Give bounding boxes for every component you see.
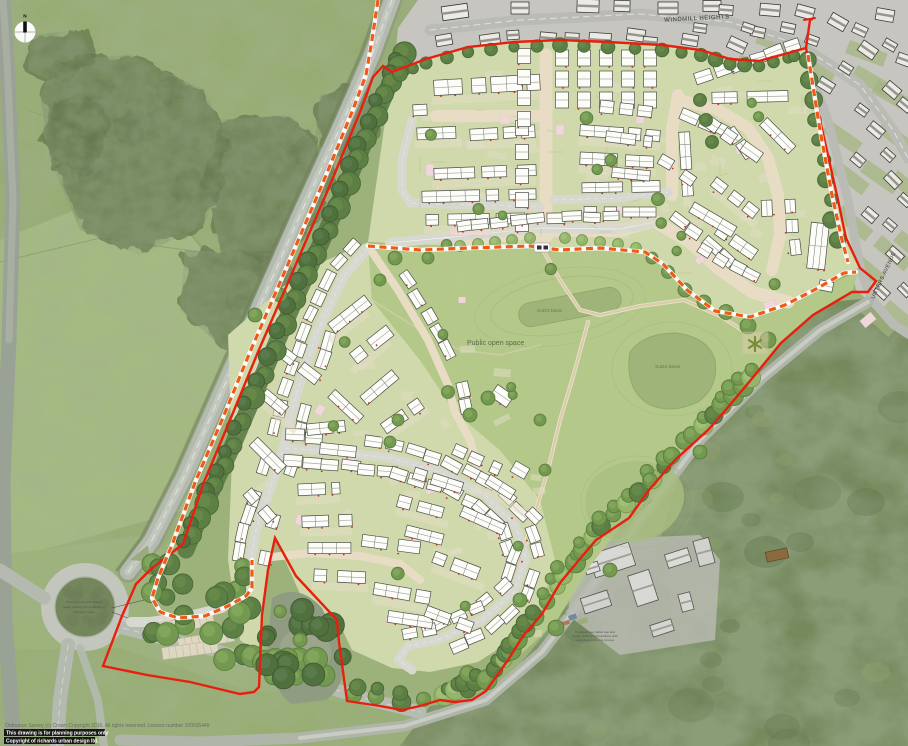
svg-text:This drawing is for planning p: This drawing is for planning purposes on… <box>6 731 108 737</box>
svg-text:Proposed new infiltr feature: Proposed new infiltr feature <box>66 600 103 604</box>
svg-text:planting to trees: planting to trees <box>73 610 95 614</box>
svg-text:Ordnance Survey (c) Crown Copy: Ordnance Survey (c) Crown Copyright 2016… <box>5 723 210 729</box>
svg-text:SuDS basin: SuDS basin <box>537 308 563 314</box>
svg-text:Copyright of richards urban de: Copyright of richards urban design ltd. <box>6 739 99 745</box>
svg-text:understorey planting to trees: understorey planting to trees <box>576 638 615 642</box>
svg-text:hedge planting with understore: hedge planting with understorey <box>63 605 106 609</box>
svg-text:Public open space: Public open space <box>467 340 524 347</box>
svg-text:N: N <box>23 14 27 20</box>
svg-text:SuDS basin: SuDS basin <box>655 364 681 370</box>
